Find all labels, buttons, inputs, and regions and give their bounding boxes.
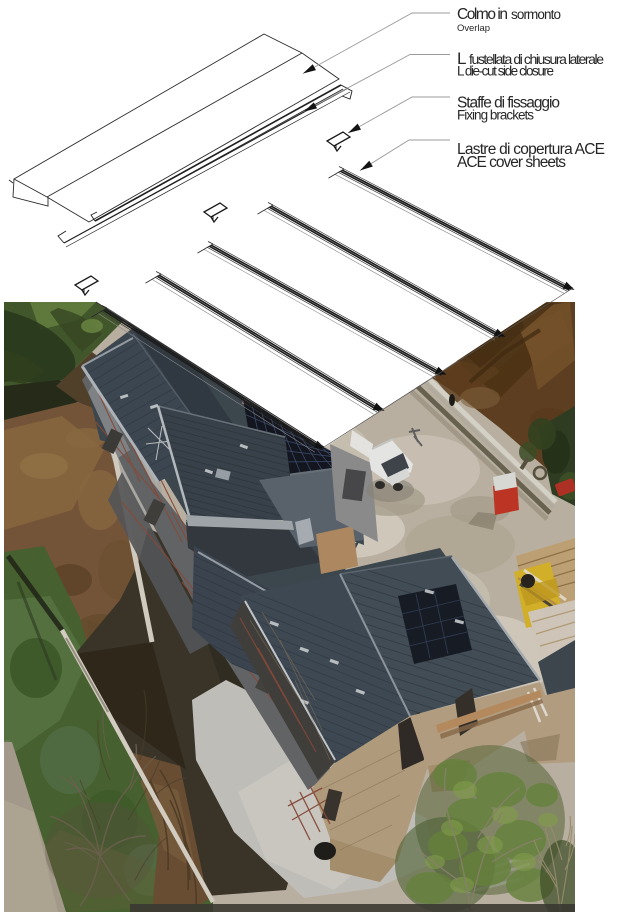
svg-text:Colmo in: Colmo in (457, 6, 508, 23)
svg-text:ACE cover sheets: ACE cover sheets (457, 154, 566, 171)
svg-text:Overlap: Overlap (457, 23, 490, 34)
svg-text:L die-cut side closure: L die-cut side closure (457, 64, 554, 79)
svg-text:Fixing brackets: Fixing brackets (457, 108, 534, 123)
svg-text:sormonto: sormonto (511, 7, 561, 22)
